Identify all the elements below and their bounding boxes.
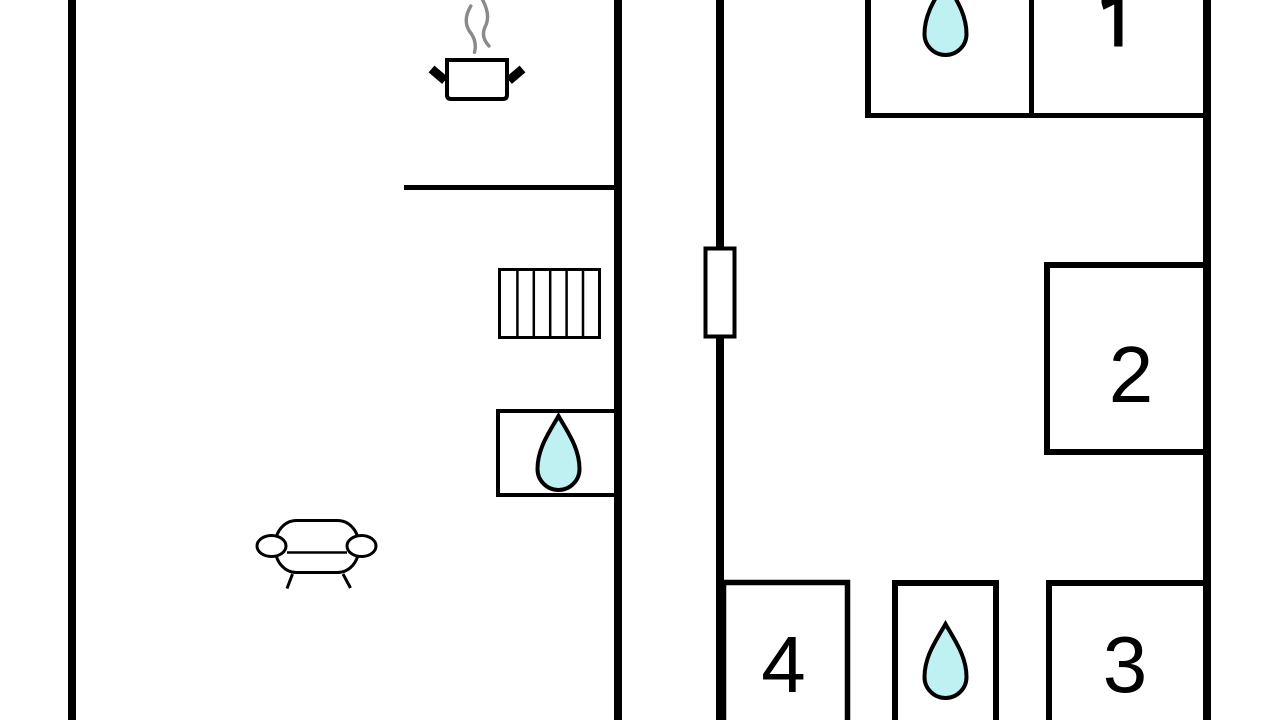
svg-text:3: 3 xyxy=(1103,620,1148,709)
svg-text:2: 2 xyxy=(1109,330,1154,419)
svg-text:4: 4 xyxy=(761,620,806,709)
